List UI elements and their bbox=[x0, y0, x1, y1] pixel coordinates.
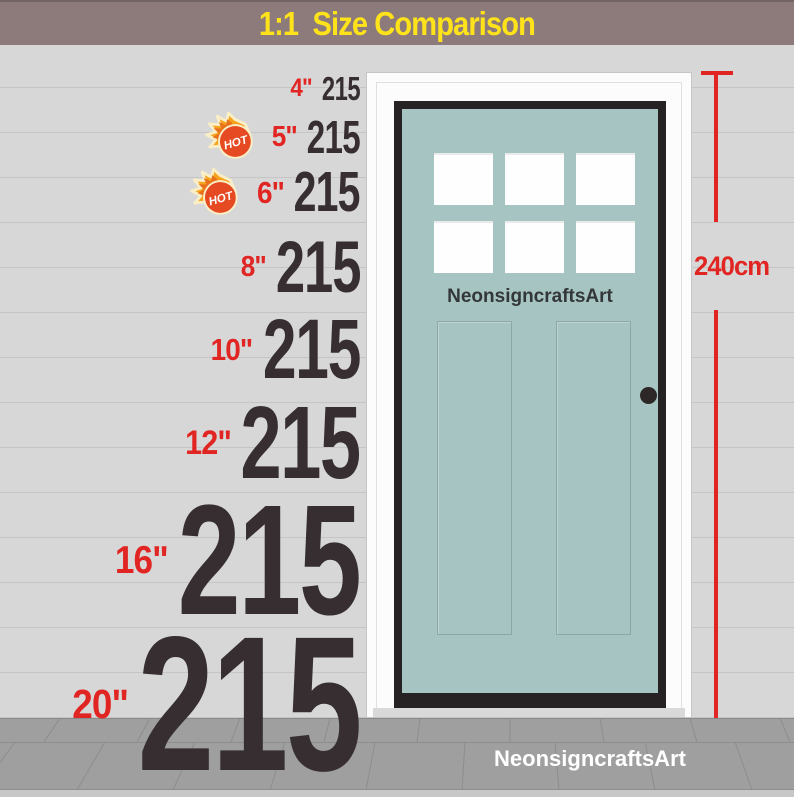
size-row-20in: 20" 215 bbox=[66, 608, 360, 797]
size-label: 6" bbox=[257, 177, 284, 208]
size-comparison-infographic: 1:1 Size Comparison 4" 215 HOT 5" 215 HO… bbox=[0, 0, 794, 797]
door-windows bbox=[434, 153, 635, 273]
page-title: 1:1 Size Comparison bbox=[259, 5, 535, 43]
size-label: 12" bbox=[185, 426, 231, 460]
size-label: 20" bbox=[72, 684, 128, 725]
house-number-sample: 215 bbox=[275, 231, 360, 304]
size-row-10in: 10" 215 bbox=[206, 307, 360, 391]
door-face: NeonsigncraftsArt bbox=[402, 109, 658, 693]
hot-flame-icon: HOT bbox=[205, 112, 259, 162]
door-panel bbox=[556, 321, 631, 635]
size-label: 4" bbox=[290, 76, 311, 101]
size-row-5in: HOT 5" 215 bbox=[205, 114, 360, 160]
door-brand-text: NeonsigncraftsArt bbox=[402, 286, 658, 308]
door-window-pane bbox=[434, 153, 493, 205]
door-panel bbox=[437, 321, 512, 635]
floor-brand-text: NeonsigncraftsArt bbox=[440, 746, 740, 772]
door-window-pane bbox=[505, 153, 564, 205]
door-knob bbox=[640, 387, 657, 404]
size-row-8in: 8" 215 bbox=[238, 231, 360, 304]
house-number-sample: 215 bbox=[307, 114, 360, 160]
size-row-6in: HOT 6" 215 bbox=[190, 164, 360, 221]
house-number-sample: 215 bbox=[294, 164, 360, 221]
door-window-pane bbox=[576, 221, 635, 273]
house-number-sample: 215 bbox=[322, 72, 360, 105]
size-row-4in: 4" 215 bbox=[288, 72, 360, 105]
door-frame: NeonsigncraftsArt bbox=[366, 72, 692, 718]
dimension-line-upper bbox=[714, 75, 718, 222]
door-window-pane bbox=[505, 221, 564, 273]
size-label: 8" bbox=[240, 253, 265, 282]
title-banner: 1:1 Size Comparison bbox=[0, 0, 794, 45]
size-label: 5" bbox=[272, 123, 297, 152]
size-label: 16" bbox=[115, 541, 168, 580]
house-number-sample: 215 bbox=[263, 307, 360, 391]
door-window-pane bbox=[434, 221, 493, 273]
size-label: 10" bbox=[211, 334, 253, 365]
door-height-label: 240cm bbox=[694, 251, 769, 282]
hot-flame-icon: HOT bbox=[190, 168, 244, 218]
door: NeonsigncraftsArt bbox=[394, 101, 666, 711]
house-number-sample: 215 bbox=[138, 608, 360, 797]
door-sill bbox=[373, 708, 685, 717]
door-window-pane bbox=[576, 153, 635, 205]
dimension-line-lower bbox=[714, 310, 718, 718]
